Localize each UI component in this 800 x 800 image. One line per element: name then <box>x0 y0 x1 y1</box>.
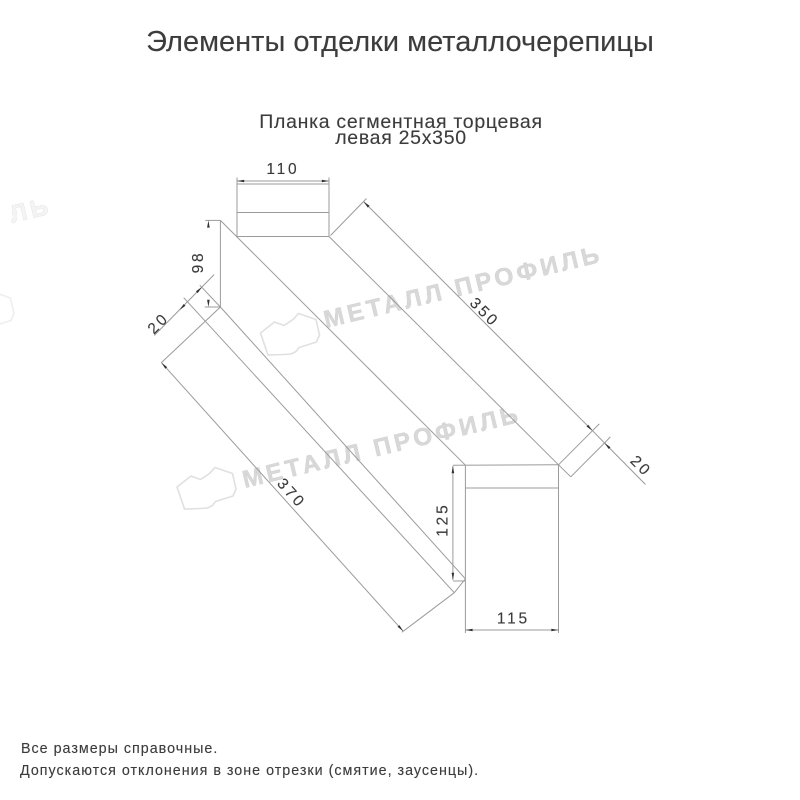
svg-text:125: 125 <box>435 502 452 536</box>
svg-text:110: 110 <box>266 161 299 178</box>
svg-text:98: 98 <box>190 251 207 274</box>
svg-text:350: 350 <box>466 295 502 331</box>
svg-text:20: 20 <box>627 453 655 481</box>
svg-text:115: 115 <box>497 611 530 628</box>
svg-text:20: 20 <box>145 310 173 338</box>
svg-text:ЛЬ: ЛЬ <box>7 193 54 229</box>
svg-text:МЕТАЛЛ ПРОФИЛЬ: МЕТАЛЛ ПРОФИЛЬ <box>321 241 605 334</box>
